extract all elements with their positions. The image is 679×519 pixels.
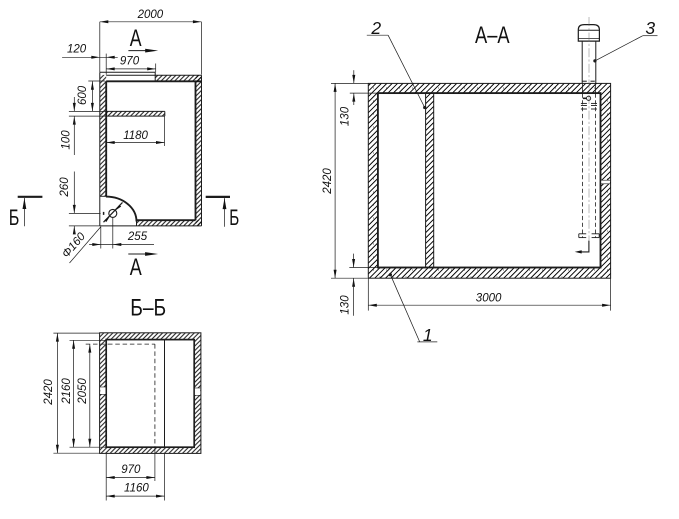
svg-text:А: А (130, 254, 142, 281)
svg-text:2050: 2050 (77, 378, 89, 405)
svg-text:130: 130 (340, 295, 352, 315)
svg-text:2420: 2420 (43, 379, 55, 406)
svg-text:3: 3 (645, 18, 655, 38)
svg-text:600: 600 (77, 85, 89, 105)
svg-text:2: 2 (370, 18, 381, 38)
svg-text:А–А: А–А (475, 22, 510, 49)
svg-text:2160: 2160 (61, 378, 73, 405)
svg-text:3000: 3000 (476, 293, 502, 305)
svg-text:130: 130 (340, 106, 352, 126)
svg-text:970: 970 (120, 55, 140, 67)
svg-text:1: 1 (423, 325, 433, 345)
svg-text:120: 120 (67, 44, 87, 56)
svg-text:Б: Б (9, 205, 20, 230)
svg-text:100: 100 (60, 130, 72, 150)
svg-text:1160: 1160 (124, 482, 149, 494)
svg-text:1180: 1180 (123, 130, 148, 142)
svg-text:А: А (130, 25, 142, 52)
svg-text:2000: 2000 (137, 9, 164, 21)
svg-text:Б–Б: Б–Б (130, 296, 166, 322)
svg-text:2420: 2420 (322, 168, 334, 195)
svg-text:970: 970 (121, 464, 141, 476)
svg-text:255: 255 (127, 231, 148, 243)
svg-text:260: 260 (59, 177, 71, 198)
svg-text:Б: Б (229, 205, 239, 230)
